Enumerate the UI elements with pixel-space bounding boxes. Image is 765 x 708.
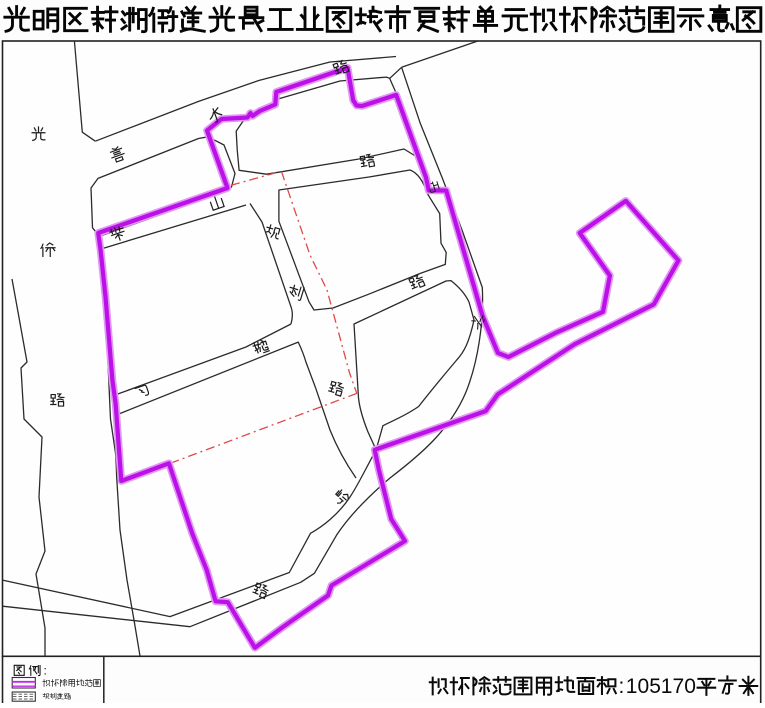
svg-text:7: 7: [673, 675, 685, 698]
svg-text:1: 1: [661, 675, 673, 698]
svg-text:0: 0: [684, 675, 696, 698]
svg-text::: :: [44, 663, 47, 677]
svg-text:1: 1: [626, 675, 638, 698]
svg-text:5: 5: [649, 675, 661, 698]
svg-text:0: 0: [638, 675, 650, 698]
svg-text::: :: [619, 675, 625, 698]
